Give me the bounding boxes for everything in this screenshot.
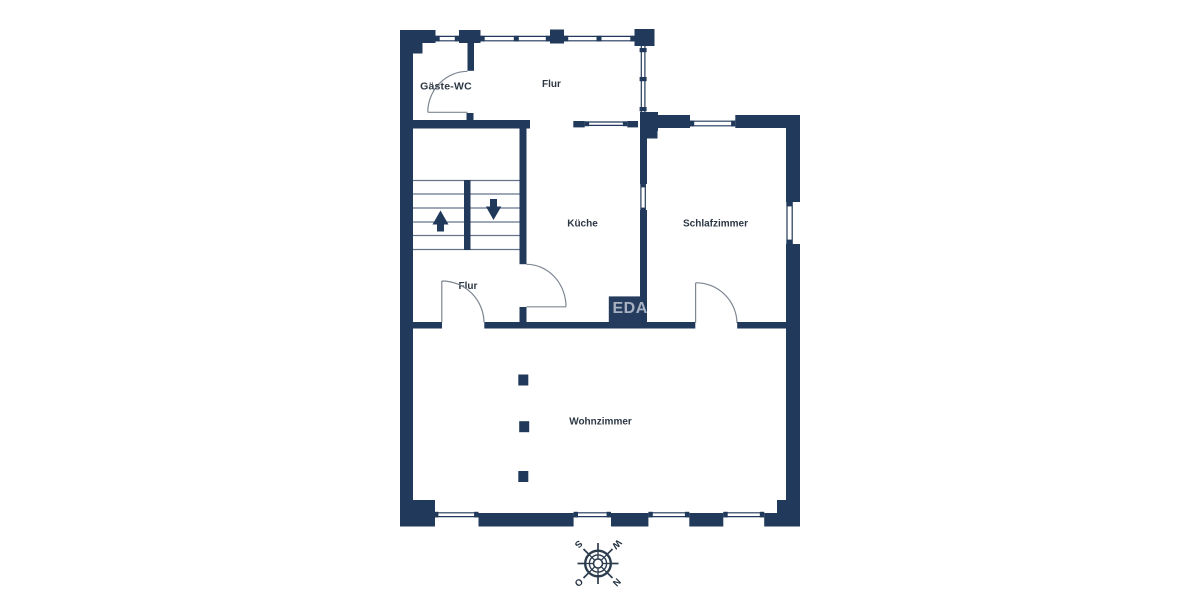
svg-text:EDA: EDA [613,300,648,317]
svg-text:Wohnzimmer: Wohnzimmer [569,417,632,428]
svg-text:Flur: Flur [542,79,561,90]
svg-text:Gäste-WC: Gäste-WC [420,81,472,93]
svg-text:Küche: Küche [567,219,598,230]
svg-text:Schlafzimmer: Schlafzimmer [683,219,748,230]
